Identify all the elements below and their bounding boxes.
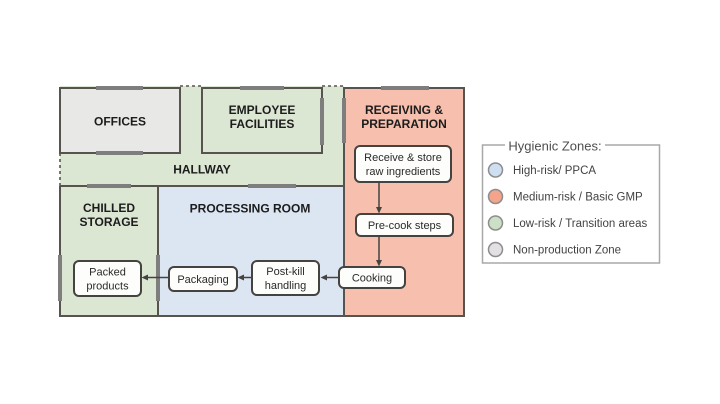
- svg-text:products: products: [86, 281, 129, 293]
- svg-text:PROCESSING ROOM: PROCESSING ROOM: [190, 202, 311, 216]
- svg-text:Pre-cook steps: Pre-cook steps: [368, 220, 442, 232]
- svg-text:EMPLOYEE: EMPLOYEE: [229, 103, 296, 117]
- svg-text:PREPARATION: PREPARATION: [361, 117, 447, 131]
- svg-text:Cooking: Cooking: [352, 273, 392, 285]
- svg-text:Post-kill: Post-kill: [266, 266, 305, 278]
- svg-text:Receive & store: Receive & store: [364, 152, 442, 164]
- svg-text:handling: handling: [265, 280, 307, 292]
- svg-text:HALLWAY: HALLWAY: [173, 163, 231, 177]
- svg-text:raw ingredients: raw ingredients: [366, 166, 441, 178]
- svg-text:Hygienic Zones:: Hygienic Zones:: [508, 139, 601, 154]
- svg-text:Non-production Zone: Non-production Zone: [513, 245, 621, 257]
- svg-text:STORAGE: STORAGE: [79, 215, 138, 229]
- svg-text:Packed: Packed: [89, 267, 126, 279]
- svg-text:Packaging: Packaging: [177, 274, 228, 286]
- svg-text:OFFICES: OFFICES: [94, 115, 146, 129]
- svg-text:CHILLED: CHILLED: [83, 201, 135, 215]
- svg-text:RECEIVING &: RECEIVING &: [365, 103, 443, 117]
- svg-text:Low-risk / Transition areas: Low-risk / Transition areas: [513, 218, 647, 230]
- svg-text:Medium-risk / Basic GMP: Medium-risk / Basic GMP: [513, 192, 643, 204]
- svg-text:FACILITIES: FACILITIES: [230, 117, 295, 131]
- svg-text:High-risk/ PPCA: High-risk/ PPCA: [513, 165, 596, 177]
